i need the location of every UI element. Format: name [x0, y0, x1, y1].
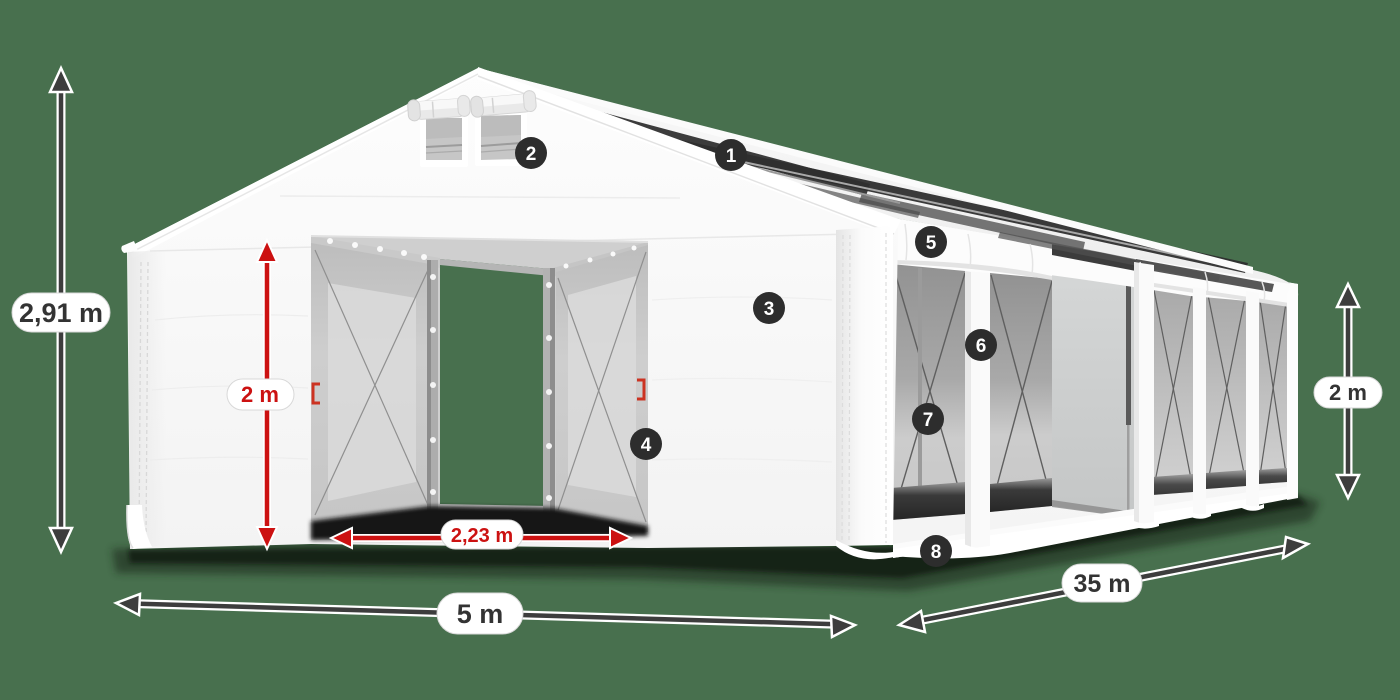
svg-text:7: 7	[923, 410, 934, 431]
svg-text:3: 3	[764, 299, 775, 320]
svg-text:6: 6	[976, 336, 987, 357]
svg-text:1: 1	[726, 146, 737, 167]
svg-text:2,91 m: 2,91 m	[19, 298, 103, 328]
svg-text:4: 4	[641, 435, 652, 456]
svg-text:5 m: 5 m	[457, 599, 504, 629]
svg-text:2: 2	[526, 144, 537, 165]
svg-text:2,23 m: 2,23 m	[451, 525, 513, 547]
svg-text:2 m: 2 m	[241, 382, 279, 407]
svg-text:8: 8	[931, 542, 942, 563]
svg-text:5: 5	[926, 233, 937, 254]
svg-text:2 m: 2 m	[1329, 380, 1367, 405]
svg-text:35 m: 35 m	[1074, 570, 1131, 598]
